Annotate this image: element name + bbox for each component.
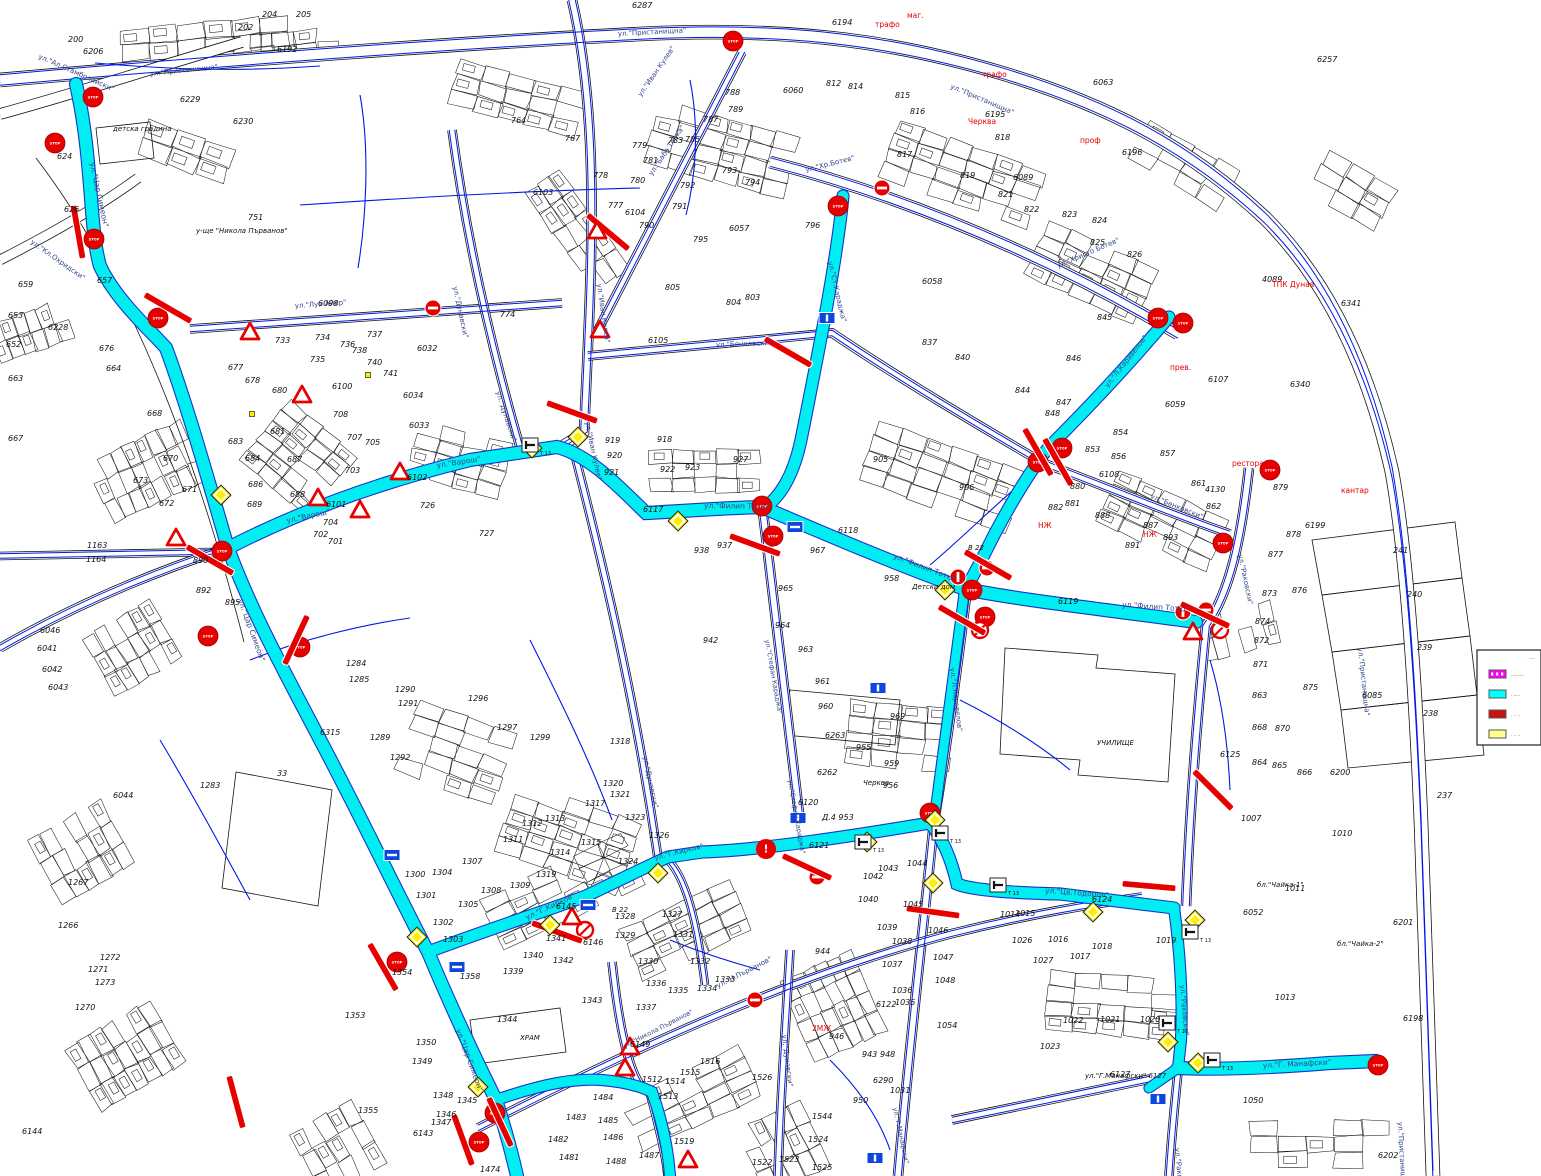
parcel-number: 1327 — [662, 910, 683, 919]
parcel-number: 1036 — [892, 986, 912, 995]
parcel-number: 1163 — [87, 541, 107, 550]
parcel-number: 1321 — [610, 790, 630, 799]
parcel-number: 1341 — [546, 934, 566, 943]
svg-text:STOP: STOP — [50, 142, 61, 146]
road-closure-bar-marker[interactable] — [226, 1075, 247, 1129]
parcel-number: 1013 — [1275, 993, 1295, 1002]
parcel-number: 840 — [955, 353, 970, 362]
yield-sign-icon[interactable] — [309, 489, 327, 505]
facility-label: детска градина — [112, 125, 171, 133]
legend-header-dots: · ···· — [1527, 656, 1535, 661]
parcel-number: 861 — [1191, 479, 1206, 488]
info-sign-icon[interactable] — [449, 962, 465, 973]
parcel-number: 676 — [99, 344, 114, 353]
parcel-number: 6290 — [873, 1076, 893, 1085]
svg-text:STOP: STOP — [1265, 469, 1276, 473]
parcel-number: 6098 — [318, 299, 338, 308]
parcel-number: 6340 — [1290, 380, 1310, 389]
parcel-number: 866 — [1297, 768, 1312, 777]
parcel-number: 1349 — [412, 1057, 432, 1066]
parcel-number: 708 — [333, 410, 348, 419]
info-sign-icon[interactable] — [580, 900, 596, 911]
parcel-number: 822 — [1024, 205, 1039, 214]
parcel-number: 812 — [826, 79, 841, 88]
parcel-number: 1331 — [673, 930, 693, 939]
parcel-number: 6102 — [407, 473, 427, 482]
yield-sign-icon[interactable] — [679, 1151, 697, 1167]
parcel-number: 1283 — [200, 781, 220, 790]
road-closure-bar-marker[interactable] — [781, 853, 833, 882]
parcel-number: 854 — [1113, 428, 1128, 437]
parcel-number: 6200 — [1330, 768, 1350, 777]
parcel-number: 1285 — [349, 675, 369, 684]
stop-sign-marker[interactable]: STOP — [212, 541, 232, 561]
hydrant-marker[interactable] — [250, 412, 255, 417]
stop-sign-marker[interactable]: STOP — [1213, 533, 1233, 553]
facility-label: Черква — [863, 779, 889, 787]
svg-text:STOP: STOP — [728, 40, 739, 44]
parcel-number: 6059 — [1165, 400, 1185, 409]
stop-sign-marker[interactable]: STOP — [198, 626, 218, 646]
facility-label: В 22 — [968, 544, 984, 552]
parcel-number: 6229 — [180, 95, 200, 104]
stop-sign-marker[interactable]: STOP — [469, 1132, 489, 1152]
parcel-number: 921 — [604, 468, 619, 477]
svg-text:STOP: STOP — [980, 616, 991, 620]
parcel-number: 959 — [884, 759, 899, 768]
parcel-number: 764 — [511, 116, 526, 125]
parcel-number: 781 — [643, 156, 658, 165]
yield-sign-icon[interactable] — [167, 529, 185, 545]
parcel-number: 1016 — [1048, 935, 1068, 944]
parcel-number: 1336 — [646, 979, 666, 988]
parcel-number: 937 — [717, 541, 733, 550]
parcel-number: 872 — [1254, 636, 1269, 645]
parcel-number: 6125 — [1220, 750, 1240, 759]
parcel-number: 821 — [998, 190, 1013, 199]
parcel-number: 803 — [745, 293, 760, 302]
stop-sign-marker[interactable]: STOP — [1148, 308, 1168, 328]
parcel-number: 1350 — [416, 1038, 436, 1047]
junction-layout-sign-icon[interactable]: Т 13 — [855, 835, 884, 854]
parcel-number: 670 — [163, 454, 178, 463]
parcel-number: 789 — [728, 105, 743, 114]
parcel-number: 794 — [745, 178, 760, 187]
parcel-number: 1284 — [346, 659, 366, 668]
facility-label-red: кантар — [1341, 486, 1369, 495]
parcel-number: 1330 — [638, 957, 658, 966]
parcel-number: 664 — [106, 364, 121, 373]
road-network — [0, 0, 1433, 1176]
legend-item-label: · ·· ·· — [1511, 713, 1520, 718]
parcel-number: 826 — [1127, 250, 1142, 259]
svg-text:!: ! — [763, 843, 768, 856]
legend-item-label: ·········· — [1511, 673, 1524, 678]
parcel-number: 1544 — [812, 1112, 832, 1121]
alert-marker[interactable]: ! — [756, 839, 776, 859]
svg-text:STOP: STOP — [153, 317, 164, 321]
parcel-number: 893 — [1163, 533, 1178, 542]
parcel-number: 1043 — [878, 864, 898, 873]
street-name-label: ул."Раковски" — [1236, 554, 1254, 606]
parcel-number: 877 — [1268, 550, 1284, 559]
parcel-number: 1318 — [610, 737, 630, 746]
parcel-number: 1319 — [536, 870, 556, 879]
parcel-number: 6041 — [37, 644, 57, 653]
junction-layout-sign-icon[interactable]: Т 13 — [1182, 925, 1211, 944]
parcel-number: 205 — [296, 10, 311, 19]
parcel-number: 1312 — [522, 819, 542, 828]
parcel-number: 846 — [1066, 354, 1081, 363]
svg-text:Т 13: Т 13 — [1199, 938, 1211, 944]
parcel-number: 6202 — [1378, 1151, 1398, 1160]
street-name-label: ул."Л.Каравелов" — [1103, 334, 1149, 389]
parcel-number: 1046 — [928, 926, 948, 935]
parcel-number: 6104 — [625, 208, 645, 217]
parcel-number: 823 — [1062, 210, 1077, 219]
parcel-number: 1308 — [481, 886, 501, 895]
stop-sign-marker[interactable]: STOP — [84, 229, 104, 249]
parcel-number: 6057 — [729, 224, 750, 233]
parcel-number: 1027 — [1033, 956, 1054, 965]
stop-sign-marker[interactable]: STOP — [1173, 313, 1193, 333]
parcel-number: 6146 — [583, 938, 603, 947]
parcel-number: 6105 — [648, 336, 668, 345]
stop-sign-marker[interactable]: STOP — [1368, 1055, 1388, 1075]
svg-text:STOP: STOP — [1153, 317, 1164, 321]
parcel-number: 845 — [1097, 313, 1112, 322]
parcel-number: 792 — [680, 181, 695, 190]
parcel-number: 1020 — [1140, 1015, 1160, 1024]
parcel-number: 788 — [725, 88, 740, 97]
svg-text:STOP: STOP — [89, 238, 100, 242]
parcel-number: 873 — [1262, 589, 1277, 598]
parcel-number: 891 — [1125, 541, 1140, 550]
parcel-number: 1292 — [390, 753, 410, 762]
parcel-number: 879 — [1273, 483, 1288, 492]
parcel-number: 6107 — [1208, 375, 1229, 384]
parcel-number: 1007 — [1241, 814, 1262, 823]
parcel-number: 6034 — [403, 391, 423, 400]
info-sign-icon[interactable] — [867, 1153, 883, 1164]
stop-sign-marker[interactable]: STOP — [723, 31, 743, 51]
no-entry-sign-icon[interactable] — [747, 992, 763, 1008]
parcel-number: 6199 — [1305, 521, 1325, 530]
parcel-number: 1482 — [548, 1135, 568, 1144]
parcel-number: 918 — [657, 435, 672, 444]
svg-text:STOP: STOP — [1218, 542, 1229, 546]
facility-label: В 22 — [612, 906, 628, 914]
parcel-number: 790 — [639, 221, 654, 230]
parcel-number: 927 — [733, 455, 749, 464]
parcel-number: 703 — [345, 466, 360, 475]
parcel-number: 1474 — [480, 1165, 500, 1174]
parcel-number: 880 — [1070, 482, 1085, 491]
facility-label-red: маг. — [907, 11, 924, 20]
parcel-number: 735 — [310, 355, 325, 364]
stop-sign-marker[interactable]: STOP — [763, 526, 783, 546]
parcel-number: 1037 — [882, 960, 903, 969]
facility-label-red: Черква — [968, 117, 996, 126]
stop-sign-marker[interactable]: STOP — [962, 580, 982, 600]
parcel-number: 6089 — [1013, 173, 1033, 182]
parcel-number: 1335 — [668, 986, 688, 995]
parcel-number: 1524 — [808, 1135, 828, 1144]
parcel-number: 1164 — [86, 555, 106, 564]
parcel-number: 895 — [225, 598, 240, 607]
street-name-label: ул."Пристанищна" — [1396, 1122, 1408, 1176]
parcel-number: 1038 — [892, 937, 912, 946]
info-sign-icon[interactable] — [1150, 1094, 1166, 1105]
parcel-number: 922 — [660, 465, 675, 474]
parcel-number: 1291 — [398, 699, 418, 708]
facility-label-red: ТПК Дунав — [1271, 280, 1314, 289]
parcel-number: 943 — [862, 1050, 877, 1059]
parcel-number: 1300 — [405, 870, 425, 879]
parcel-number: 6119 — [1058, 597, 1078, 606]
parcel-number: 853 — [1085, 445, 1100, 454]
parcel-number: 969 — [890, 712, 905, 721]
parcel-number: 1358 — [460, 972, 480, 981]
parcel-number: 1515 — [680, 1068, 700, 1077]
parcel-number: 707 — [347, 433, 363, 442]
parcel-number: 767 — [565, 134, 581, 143]
parcel-number: 6149 — [630, 1040, 650, 1049]
parcel-number: 6145 — [556, 902, 576, 911]
map-drawing: STOPSTOPSTOPSTOPSTOPSTOPSTOPSTOPSTOPSTOP… — [0, 0, 1541, 1176]
parcel-number: 6120 — [798, 798, 818, 807]
parcel-number: 870 — [1275, 724, 1290, 733]
yield-sign-icon[interactable] — [293, 386, 311, 402]
parcel-number: 6192 — [277, 45, 297, 54]
parcel-number: 1301 — [416, 891, 436, 900]
parcel-number: 1314 — [550, 848, 570, 857]
parcel-number: 1326 — [649, 831, 669, 840]
parcel-number: 1289 — [370, 733, 390, 742]
parcel-number: 948 — [880, 1050, 895, 1059]
parcel-number: 1302 — [433, 918, 453, 927]
parcel-number: 1270 — [75, 1003, 95, 1012]
stop-sign-marker[interactable]: STOP — [83, 87, 103, 107]
parcel-number: 1048 — [935, 976, 955, 985]
parcel-number: 33 — [277, 769, 287, 778]
parcel-number: 1345 — [457, 1096, 477, 1105]
parcel-number: 6287 — [632, 1, 653, 10]
parcel-number: 741 — [383, 369, 398, 378]
parcel-number: 1040 — [858, 895, 878, 904]
parcel-number: 1329 — [615, 931, 635, 940]
parcel-number: 740 — [367, 358, 382, 367]
info-sign-icon[interactable] — [819, 313, 835, 324]
parcel-number: 6108 — [1099, 470, 1119, 479]
parcel-number: 1324 — [618, 857, 638, 866]
facility-label: бл."Чайка-2" — [1337, 940, 1384, 948]
parcel-number: 882 — [1048, 503, 1063, 512]
legend-panel: · ··············· ······ ·· ··· ·· ·· — [1477, 650, 1541, 745]
parcel-number: 1526 — [752, 1073, 772, 1082]
facility-label: у-ще "Никола Първанов" — [195, 227, 288, 235]
street-name-label: ул."Бенковски" — [716, 339, 772, 349]
svg-text:STOP: STOP — [217, 550, 228, 554]
parcel-number: 6085 — [1362, 691, 1382, 700]
parcel-number: 1311 — [503, 835, 523, 844]
stop-sign-marker[interactable]: STOP — [148, 308, 168, 328]
parcel-number: 847 — [1056, 398, 1072, 407]
parcel-number: 626 — [64, 205, 79, 214]
parcel-number: 964 — [775, 621, 790, 630]
parcel-number: 906 — [959, 483, 974, 492]
parcel-number: 890 — [193, 556, 208, 565]
parcel-number: 1026 — [1012, 936, 1032, 945]
svg-text:STOP: STOP — [474, 1141, 485, 1145]
parcel-number: 624 — [57, 152, 72, 161]
parcel-number: 6257 — [1317, 55, 1338, 64]
parcel-number: 6341 — [1341, 299, 1361, 308]
parcel-number: 6118 — [838, 526, 858, 535]
street-name-label: ул."Иван Кулев" — [636, 45, 677, 99]
parcel-number: 1272 — [100, 953, 120, 962]
parcel-number: 1307 — [462, 857, 483, 866]
stop-sign-marker[interactable]: STOP — [45, 133, 65, 153]
svg-text:Т 13: Т 13 — [949, 839, 961, 845]
facility-label: УЧИЛИЩЕ — [1097, 739, 1134, 747]
parcel-number: 857 — [1160, 449, 1176, 458]
parcel-number: 1342 — [553, 956, 573, 965]
parcel-number: 6122 — [876, 1000, 896, 1009]
street-name-label: ул."Филип Тотю" — [704, 501, 771, 511]
parcel-number: 819 — [960, 171, 975, 180]
parcel-number: 923 — [685, 463, 700, 472]
road-closure-bar-marker[interactable] — [1192, 769, 1235, 812]
parcel-number: 1488 — [606, 1157, 626, 1166]
stop-sign-marker[interactable]: STOP — [828, 196, 848, 216]
parcel-number: 6228 — [48, 323, 68, 332]
parcel-number: 701 — [328, 537, 343, 546]
parcel-number: 6196 — [1122, 148, 1142, 157]
parcel-number: 1483 — [566, 1113, 586, 1122]
parcel-number: 1320 — [603, 779, 623, 788]
street-name-label: ул."Н.Първанов" — [715, 955, 773, 990]
parcel-number: 726 — [420, 501, 435, 510]
parcel-number: 791 — [672, 202, 687, 211]
parcel-number: 774 — [500, 310, 515, 319]
parcel-number: 946 — [829, 1032, 844, 1041]
parcel-number: 671 — [182, 485, 197, 494]
parcel-number: 4130 — [1205, 485, 1225, 494]
info-sign-icon[interactable] — [870, 683, 886, 694]
parcel-number: 963 — [798, 645, 813, 654]
svg-text:STOP: STOP — [392, 961, 403, 965]
parcel-number: 6063 — [1093, 78, 1113, 87]
parcel-number: 653 — [8, 311, 23, 320]
parcel-number: 1337 — [636, 1003, 657, 1012]
hydrant-marker[interactable] — [366, 373, 371, 378]
parcel-number: 942 — [703, 636, 718, 645]
parcel-number: 6033 — [409, 421, 429, 430]
parcel-number: 967 — [810, 546, 826, 555]
parcel-number: 1512 — [642, 1075, 662, 1084]
parcel-number: 677 — [228, 363, 244, 372]
parcel-number: 6042 — [42, 665, 62, 674]
parcel-number: 814 — [848, 82, 863, 91]
parcel-number: 1347 — [431, 1118, 452, 1127]
parcel-number: 824 — [1092, 216, 1107, 225]
parcel-number: 863 — [1252, 691, 1267, 700]
svg-text:STOP: STOP — [833, 205, 844, 209]
parcel-number: 684 — [245, 454, 260, 463]
parcel-number: 961 — [815, 677, 830, 686]
parcel-number: 688 — [290, 490, 305, 499]
parcel-number: 702 — [313, 530, 328, 539]
info-sign-icon[interactable] — [787, 522, 803, 533]
parcel-number: 663 — [8, 374, 23, 383]
parcel-number: 881 — [1065, 499, 1080, 508]
svg-text:Т 13: Т 13 — [872, 848, 884, 854]
parcel-number: 1017 — [1070, 952, 1091, 961]
yield-sign-icon[interactable] — [351, 501, 369, 517]
parcel-number: 6117 — [643, 505, 664, 514]
parcel-number: 1354 — [392, 968, 412, 977]
parcel-number: 795 — [693, 235, 708, 244]
parcel-number: 672 — [159, 499, 174, 508]
map-labels: ул."Ал.Стамболийски"ул."Пристанищна"ул."… — [6, 1, 1453, 1176]
legend-swatch — [1489, 690, 1506, 698]
parcel-number: 751 — [248, 213, 263, 222]
parcel-number: 1525 — [812, 1163, 832, 1172]
parcel-number: 6194 — [832, 18, 852, 27]
facility-label: бл."Чайка-1" — [1257, 881, 1304, 889]
parcel-number: 704 — [323, 518, 338, 527]
parcel-number: 1486 — [603, 1133, 623, 1142]
parcel-number: 876 — [1292, 586, 1307, 595]
parcel-number: 705 — [365, 438, 380, 447]
parcel-number: 793 — [722, 166, 737, 175]
parcel-number: 955 — [856, 743, 871, 752]
parcel-number: 815 — [895, 91, 910, 100]
road-closure-bar-marker[interactable] — [1122, 880, 1176, 891]
parcel-number: 816 — [910, 107, 925, 116]
svg-text:Т 13: Т 13 — [1007, 891, 1019, 897]
parcel-number: 738 — [352, 346, 367, 355]
svg-text:STOP: STOP — [768, 535, 779, 539]
no-entry-sign-icon[interactable] — [874, 180, 890, 196]
parcel-number: 1333 — [715, 975, 735, 984]
parcel-number: 6143 — [413, 1129, 433, 1138]
cadastral-map-canvas[interactable]: STOPSTOPSTOPSTOPSTOPSTOPSTOPSTOPSTOPSTOP… — [0, 0, 1541, 1176]
parcel-number: 837 — [922, 338, 938, 347]
parcel-number: 1021 — [1100, 1015, 1120, 1024]
parcel-number: 1297 — [497, 723, 518, 732]
parcel-number: 6044 — [113, 791, 133, 800]
facility-label-red: ресторант — [1232, 459, 1274, 468]
parcel-number: 6263 — [825, 731, 845, 740]
parcel-number: 680 — [272, 386, 287, 395]
parcel-number: 905 — [873, 455, 888, 464]
info-sign-icon[interactable] — [384, 850, 400, 861]
parcel-number: 6315 — [320, 728, 340, 737]
parcel-number: 779 — [632, 141, 647, 150]
parcel-number: 871 — [1253, 660, 1268, 669]
parcel-number: 1305 — [458, 900, 478, 909]
svg-text:Т 13: Т 13 — [1221, 1066, 1233, 1072]
parcel-number: 1290 — [395, 685, 415, 694]
parcel-number: 681 — [270, 427, 285, 436]
parcel-number: 6103 — [533, 188, 553, 197]
parcel-number: 878 — [1286, 530, 1301, 539]
parcel-number: 1353 — [345, 1011, 365, 1020]
parcel-number: Д.4 953 — [821, 813, 854, 822]
no-entry-sign-icon[interactable] — [425, 300, 441, 316]
